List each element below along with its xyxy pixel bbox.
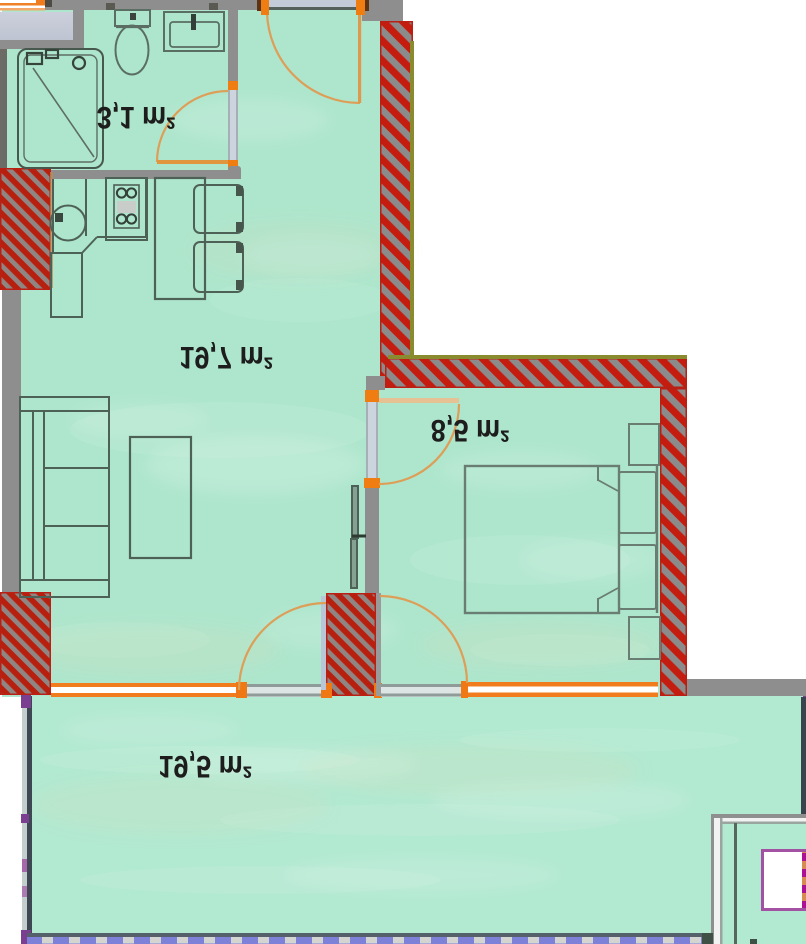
svg-text:3,1 m²: 3,1 m²: [97, 100, 176, 135]
svg-text:19,5 m²: 19,5 m²: [158, 749, 252, 784]
svg-text:19,7 m²: 19,7 m²: [179, 340, 273, 375]
svg-text:8,5 m²: 8,5 m²: [431, 413, 510, 448]
